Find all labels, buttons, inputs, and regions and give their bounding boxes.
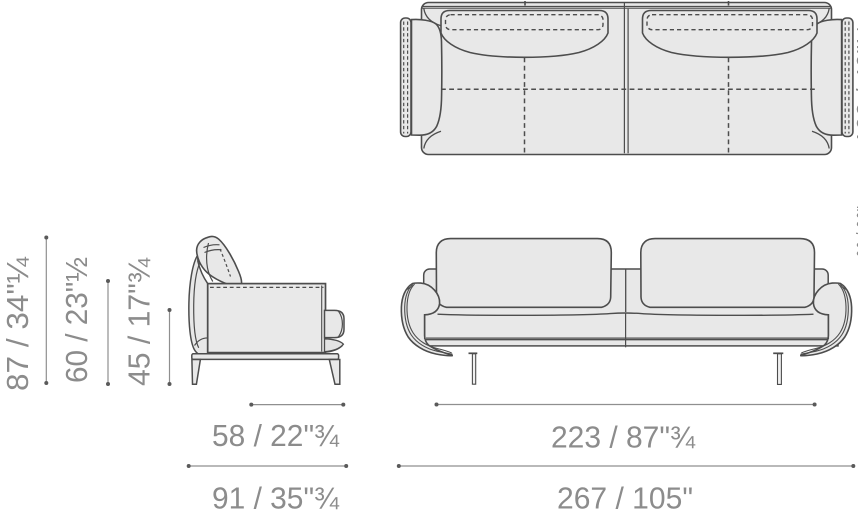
svg-text:223 / 87"¾: 223 / 87"¾	[551, 420, 696, 455]
svg-text:87 / 34"¼: 87 / 34"¼	[0, 256, 35, 391]
svg-text:60 / 23"½: 60 / 23"½	[59, 257, 94, 383]
svg-text:45 / 17"¾: 45 / 17"¾	[122, 257, 157, 386]
svg-text:103 / 40"½: 103 / 40"½	[850, 24, 858, 144]
svg-text:66 / 26": 66 / 26"	[850, 206, 858, 258]
svg-text:91 / 35"¾: 91 / 35"¾	[212, 481, 340, 514]
svg-text:58 / 22"¾: 58 / 22"¾	[212, 418, 340, 453]
svg-text:267 / 105": 267 / 105"	[557, 481, 693, 514]
